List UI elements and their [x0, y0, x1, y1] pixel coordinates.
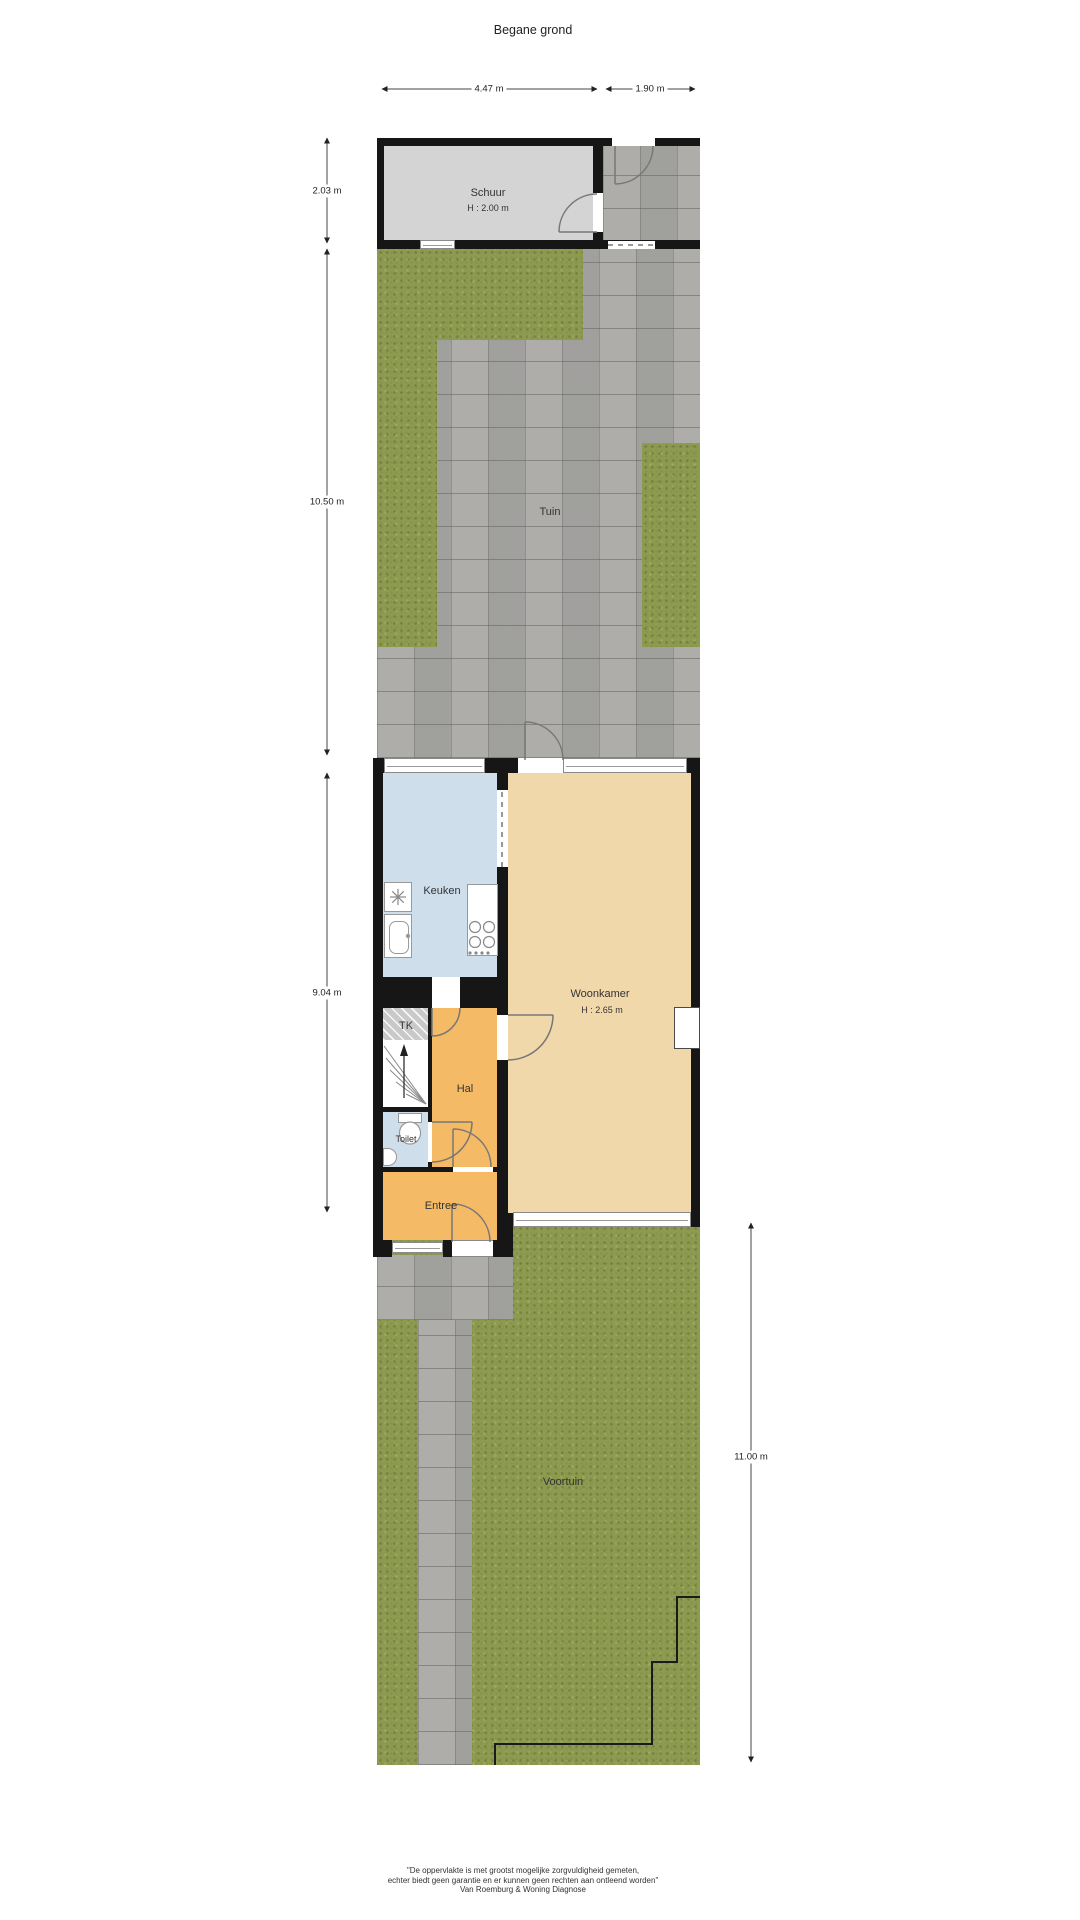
dim-house-depth: 9.04 m — [309, 987, 344, 1000]
entree-front-window — [392, 1242, 443, 1253]
rear-door-opening — [518, 758, 563, 773]
room-label-hal: Hal — [457, 1083, 474, 1095]
front-door-opening — [452, 1240, 493, 1257]
house-rear-wall-mid — [485, 758, 518, 773]
toilet-tank — [398, 1113, 422, 1123]
schuur-wall-top-left — [377, 138, 612, 146]
room-height-schuur: H : 2.00 m — [467, 203, 509, 213]
room-label-tuin: Tuin — [540, 506, 561, 518]
woonkamer-front-window — [513, 1212, 691, 1227]
woonkamer-rear-window — [563, 758, 687, 773]
disclaimer-line2: echter biedt geen garantie en er kunnen … — [388, 1876, 659, 1886]
keuken-rear-window — [384, 758, 485, 773]
room-label-voortuin: Voortuin — [543, 1476, 583, 1488]
room-label-entree: Entree — [425, 1200, 457, 1212]
tuin-grass-right — [642, 443, 700, 647]
voortuin-path — [418, 1320, 472, 1765]
front-wall-mid — [443, 1240, 452, 1257]
room-label-keuken: Keuken — [423, 885, 460, 897]
disclaimer-line1: "De oppervlakte is met grootst mogelijke… — [388, 1866, 659, 1876]
room-label-woonkamer: Woonkamer — [570, 988, 629, 1000]
dim-schuur-width: 4.47 m — [471, 83, 506, 96]
floorplan-page: Begane grond — [0, 0, 1080, 1920]
keuken-woonkamer-passage-dashed — [497, 790, 508, 867]
stairs — [383, 1040, 428, 1107]
disclaimer-line3: Van Roemburg & Woning Diagnose — [388, 1885, 659, 1895]
room-label-tk: TK — [399, 1020, 413, 1032]
schuur-wall-left — [377, 138, 384, 248]
toilet-door-opening — [428, 1122, 432, 1162]
schuur-wall-top-right — [655, 138, 700, 146]
keuken-counter-stove — [467, 884, 498, 956]
page-title: Begane grond — [494, 23, 573, 37]
keuken-hal-door-opening — [432, 977, 460, 1008]
front-wall-left — [373, 1240, 392, 1257]
schuur-window — [420, 240, 455, 249]
keuken-hood-icon — [384, 882, 412, 912]
room-height-woonkamer: H : 2.65 m — [581, 1005, 623, 1015]
sink-basin-icon — [389, 921, 409, 954]
stairs-toilet-wall — [377, 1107, 432, 1112]
disclaimer: "De oppervlakte is met grootst mogelijke… — [388, 1866, 659, 1895]
dim-tuin-depth: 10.50 m — [307, 496, 347, 509]
schuur-side-paving — [603, 146, 700, 242]
hal-woonkamer-door-opening — [497, 1015, 508, 1060]
schuur-wall-right-upper — [593, 138, 603, 193]
front-wall-right — [493, 1240, 513, 1257]
fence-gate-dashed — [608, 241, 655, 249]
woonkamer-side-window — [674, 1007, 700, 1049]
house-wall-right — [691, 758, 700, 1227]
dim-side-width: 1.90 m — [632, 83, 667, 96]
hal-entree-door-opening — [453, 1167, 493, 1172]
keuken-sink — [384, 914, 412, 958]
voortuin-paving — [377, 1255, 513, 1320]
tuin-grass-left — [377, 249, 437, 647]
dim-voortuin-depth: 11.00 m — [731, 1451, 771, 1464]
room-label-schuur: Schuur — [471, 187, 506, 199]
dim-schuur-depth: 2.03 m — [309, 185, 344, 198]
room-label-toilet: Toilet — [395, 1134, 416, 1144]
